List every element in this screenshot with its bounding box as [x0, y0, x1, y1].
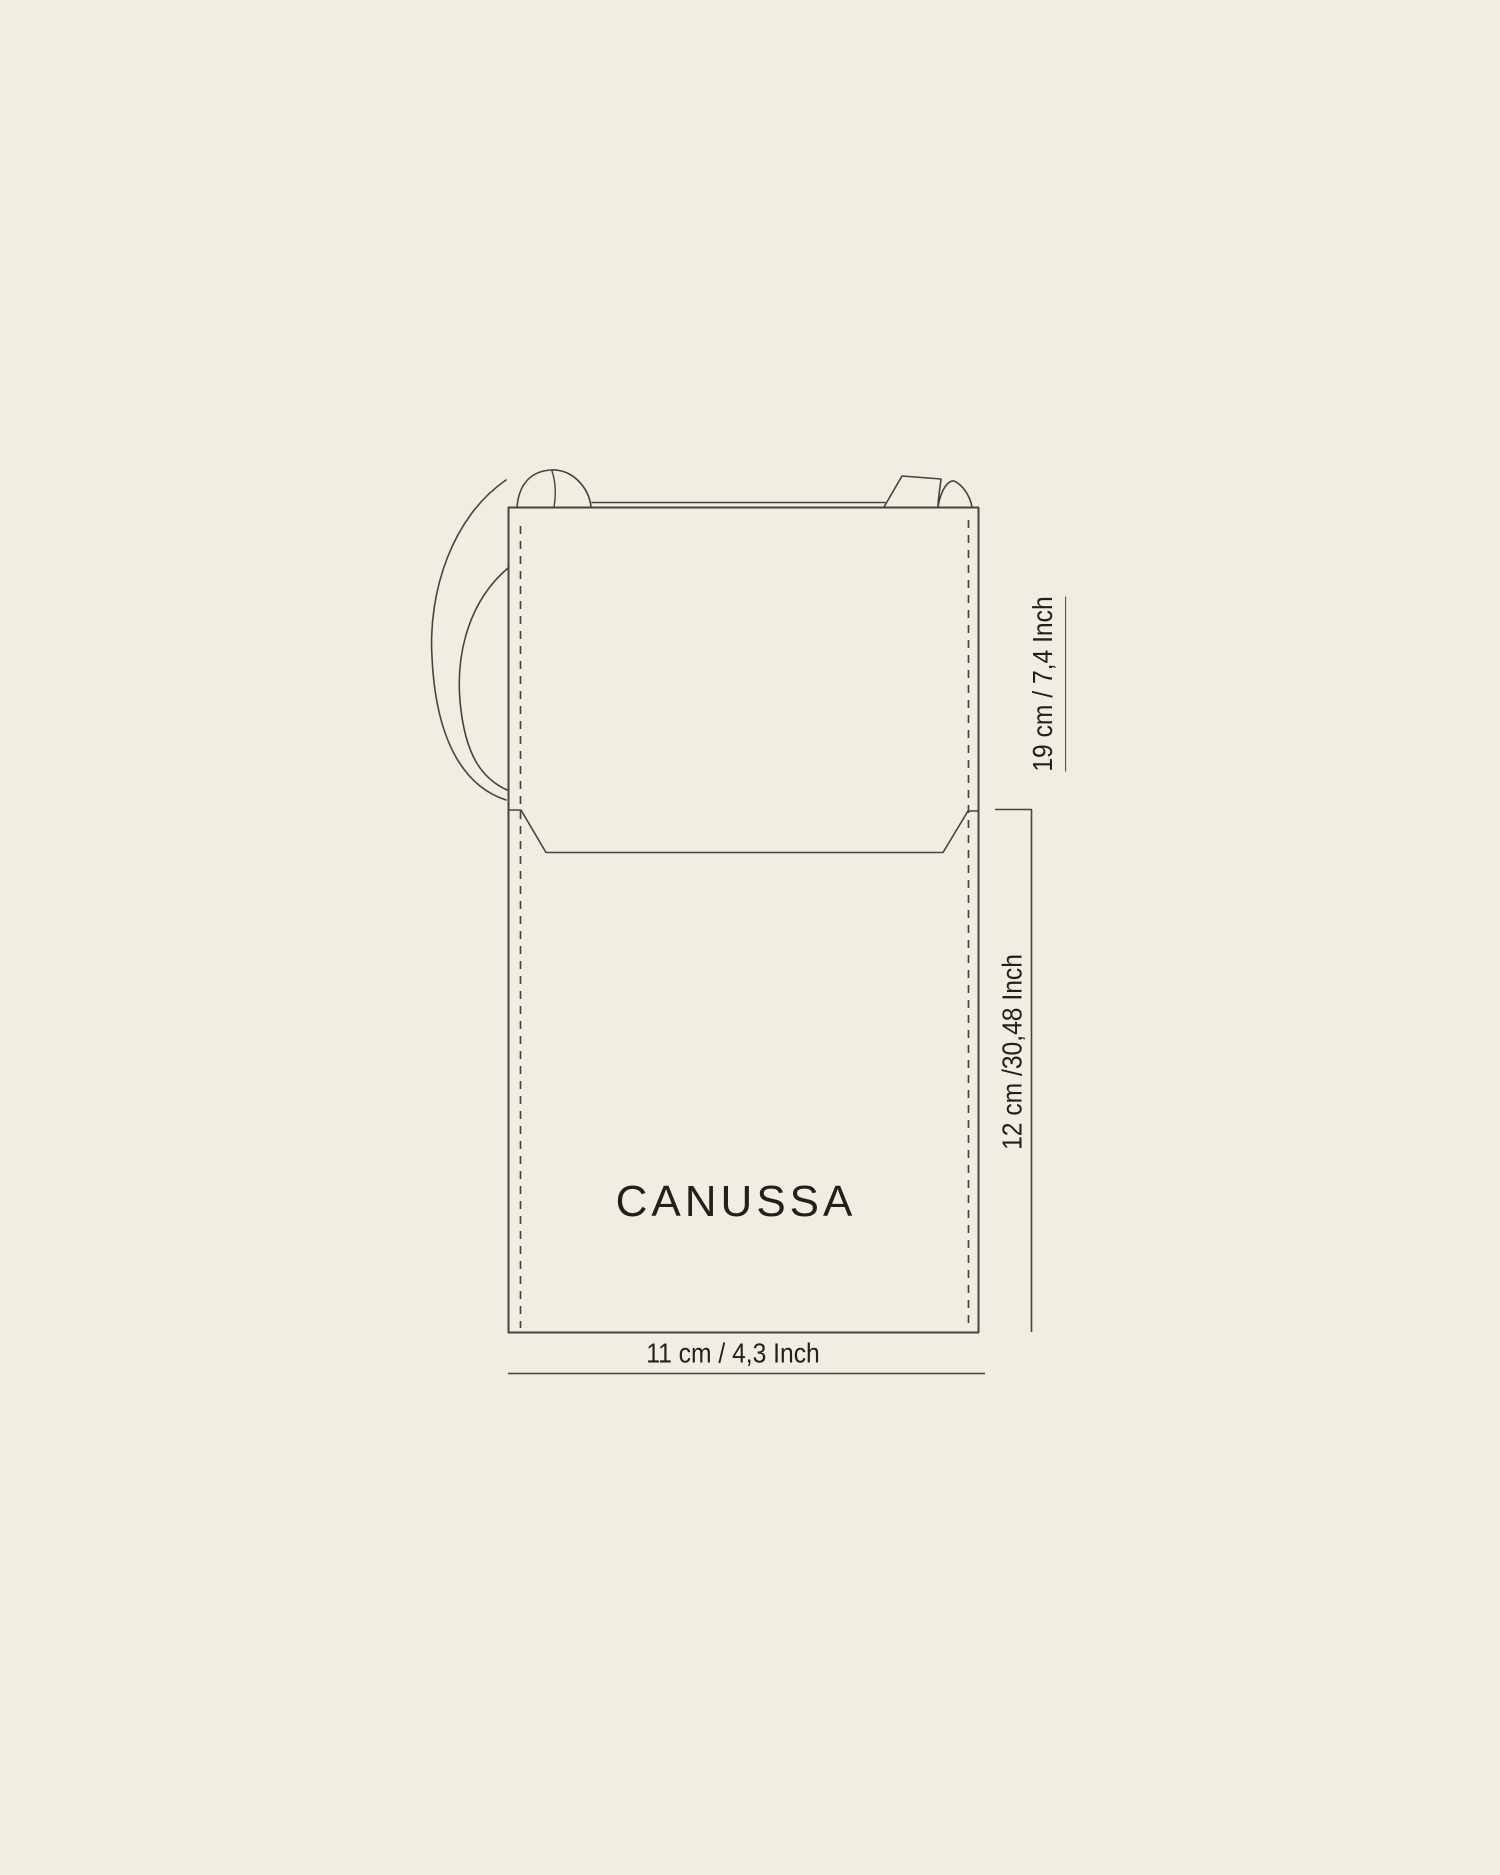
- strap-loop-left-fold: [552, 471, 555, 507]
- flap-bottom-edge: [509, 810, 979, 853]
- strap-outer-edge: [432, 480, 506, 800]
- dim-label-flap-height: 19 cm / 7,4 Inch: [1028, 596, 1066, 771]
- brand-logo: CANUSSA: [616, 1177, 857, 1227]
- strap-inner-edge: [459, 568, 508, 790]
- dim-label-body-height: 12 cm /30,48 Inch: [998, 954, 1029, 1150]
- strap-loop-right-back: [884, 476, 941, 507]
- strap-loop-right-front: [938, 481, 972, 507]
- dim-label-width: 11 cm / 4,3 Inch: [646, 1339, 819, 1370]
- product-dimension-diagram: 19 cm / 7,4 Inch 12 cm /30,48 Inch 11 cm…: [0, 0, 1500, 1875]
- bag-outline-drawing: [0, 0, 1500, 1875]
